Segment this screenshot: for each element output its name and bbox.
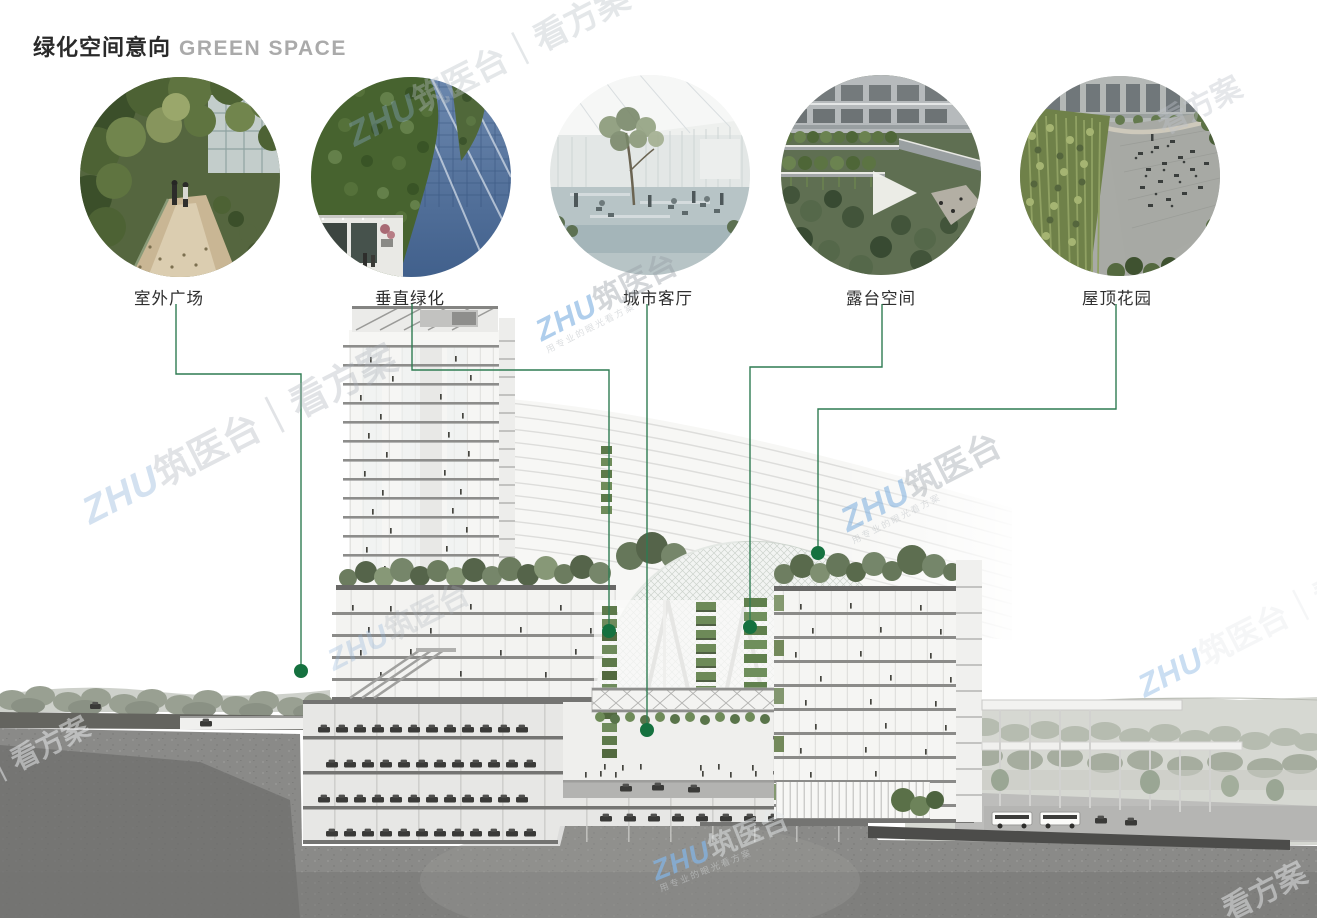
leader-lines-overlay xyxy=(0,0,1317,918)
leader-outdoor-plaza xyxy=(176,304,301,671)
leader-dot-vertical-greening xyxy=(602,624,616,638)
leader-terrace-space xyxy=(750,304,882,627)
leader-dot-outdoor-plaza xyxy=(294,664,308,678)
leader-dot-terrace-space xyxy=(743,620,757,634)
leader-dot-roof-garden xyxy=(811,546,825,560)
leader-vertical-greening xyxy=(412,304,609,631)
leader-dot-urban-living-room xyxy=(640,723,654,737)
leader-roof-garden xyxy=(818,304,1116,553)
presentation-slide: 绿化空间意向GREEN SPACE xyxy=(0,0,1317,918)
